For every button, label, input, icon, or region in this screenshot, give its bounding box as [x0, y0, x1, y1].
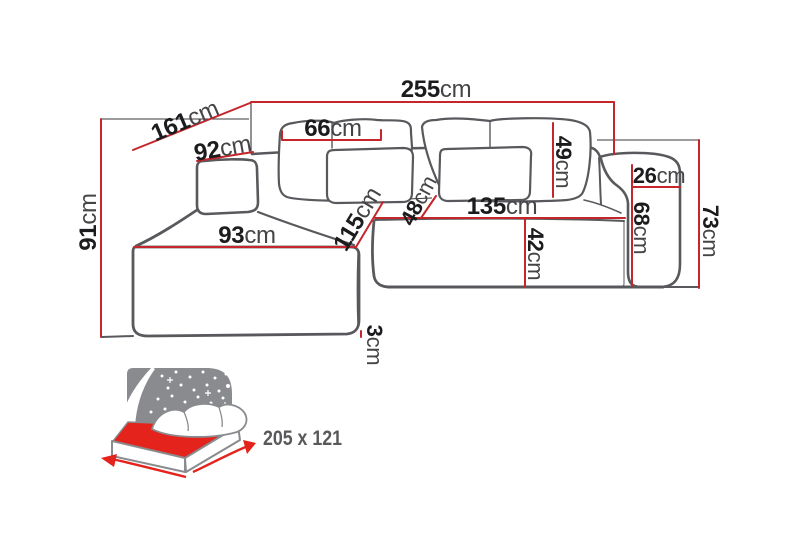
diagram-canvas: 255cm 161cm 91cm 92cm 66cm 49cm 93cm 115…: [0, 0, 800, 533]
dimension-label-93: 93cm: [218, 222, 276, 249]
sofa-bed-icon: 205 x 121: [101, 367, 342, 477]
chaise-left-slope: [136, 210, 197, 246]
dimension-label-42: 42cm: [523, 228, 548, 281]
dimension-label-26: 26cm: [633, 163, 686, 188]
chaise-right-edge: [357, 252, 358, 327]
sofa-seat-crease: [584, 200, 621, 213]
dimension-label-49: 49cm: [551, 136, 576, 189]
chaise-front-face: [133, 247, 359, 336]
dimension-label-3: 3cm: [362, 325, 387, 366]
dimension-label-73: 73cm: [698, 205, 723, 258]
sofa-dimension-diagram: 255cm 161cm 91cm 92cm 66cm 49cm 93cm 115…: [0, 0, 800, 533]
dimension-label-66: 66cm: [304, 115, 362, 142]
dimension-label-135: 135cm: [467, 193, 538, 220]
sleeping-area-label: 205 x 121: [263, 427, 342, 450]
sofa-backrest-right-edge: [599, 158, 601, 204]
dimension-label-91: 91cm: [75, 193, 102, 251]
chaise-armrest: [197, 159, 258, 214]
dimension-label-68: 68cm: [629, 202, 654, 255]
floor-line-left: [102, 336, 133, 337]
sofa-sketch: [102, 118, 698, 337]
sofa-seat-front-face: [373, 219, 625, 287]
dimension-label-255: 255cm: [401, 76, 472, 103]
